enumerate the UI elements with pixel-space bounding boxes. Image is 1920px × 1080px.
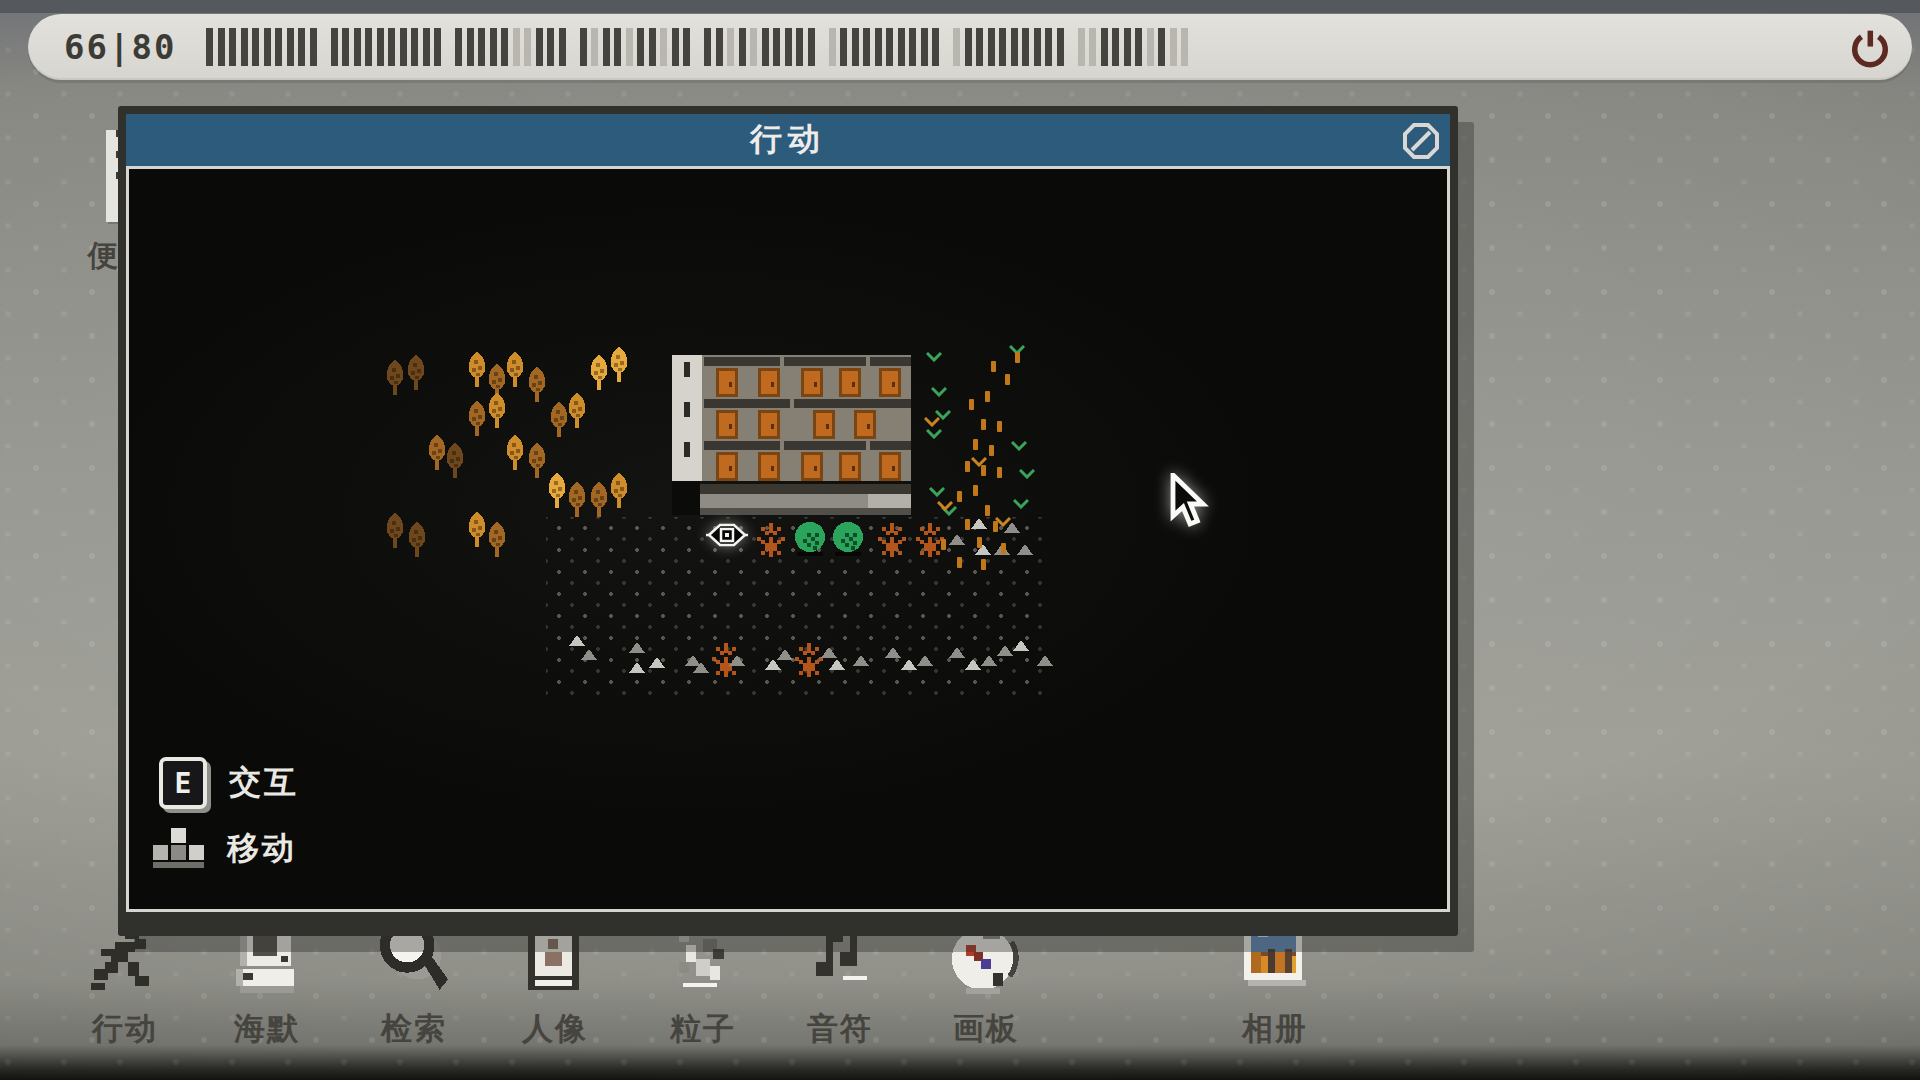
barcode-tick bbox=[536, 28, 543, 66]
barcode-tick bbox=[241, 28, 248, 66]
barcode-tick bbox=[808, 28, 815, 66]
tree-sprite bbox=[526, 367, 548, 405]
barcode-tick bbox=[275, 28, 282, 66]
barcode-tick bbox=[467, 28, 474, 66]
tree-sprite bbox=[466, 512, 488, 550]
barcode-tick bbox=[455, 28, 462, 66]
tree-sprite bbox=[546, 473, 568, 511]
tree-sprite bbox=[588, 355, 610, 393]
crop-dash-sprite bbox=[991, 361, 996, 372]
barcode-tick bbox=[580, 28, 587, 66]
desktop-icon-label: 检索 bbox=[354, 1008, 474, 1050]
rock-sprite bbox=[917, 655, 933, 666]
crop-dash-sprite bbox=[957, 491, 962, 502]
crop-chevron-sprite bbox=[929, 487, 945, 497]
desktop-icon-label: 粒子 bbox=[643, 1008, 763, 1050]
barcode-tick bbox=[988, 28, 995, 66]
barcode-tick bbox=[603, 28, 610, 66]
crop-dash-sprite bbox=[965, 461, 970, 472]
barcode-tick bbox=[218, 28, 225, 66]
bare-tree-sprite bbox=[874, 519, 910, 559]
barcode-tick bbox=[331, 28, 338, 66]
barcode-tick bbox=[626, 28, 633, 66]
barcode-tick bbox=[1181, 28, 1188, 66]
barcode-tick bbox=[423, 28, 430, 66]
rock-sprite bbox=[997, 645, 1013, 656]
barcode-tick bbox=[591, 28, 598, 66]
barcode-tick bbox=[411, 28, 418, 66]
desktop-icon-label: 画板 bbox=[926, 1008, 1046, 1050]
rock-sprite bbox=[581, 649, 597, 660]
tree-sprite bbox=[566, 482, 588, 520]
barcode-tick bbox=[377, 28, 384, 66]
desktop-icon-label: 行动 bbox=[65, 1008, 185, 1050]
rock-sprite bbox=[949, 534, 965, 545]
barcode-tick bbox=[342, 28, 349, 66]
tree-sprite bbox=[486, 393, 508, 431]
bush-sprite bbox=[791, 521, 829, 557]
crop-dash-sprite bbox=[985, 391, 990, 402]
tree-sprite bbox=[406, 522, 428, 560]
barcode-tick bbox=[829, 28, 836, 66]
tree-sprite bbox=[504, 435, 526, 473]
rock-sprite bbox=[649, 657, 665, 668]
barcode-tick bbox=[1057, 28, 1064, 66]
crop-chevron-sprite bbox=[931, 387, 947, 397]
status-bar: 66|80 bbox=[28, 14, 1912, 80]
progress-counter: 66|80 bbox=[64, 27, 176, 67]
tree-sprite bbox=[566, 393, 588, 431]
tree-sprite bbox=[588, 482, 610, 520]
barcode-tick bbox=[1034, 28, 1041, 66]
barcode-tick bbox=[1170, 28, 1177, 66]
legend-interact-label: 交互 bbox=[229, 761, 299, 805]
screen-top-strip bbox=[0, 0, 1920, 13]
barcode-tick bbox=[1022, 28, 1029, 66]
barcode-tick bbox=[1112, 28, 1119, 66]
power-button[interactable] bbox=[1848, 27, 1892, 71]
barcode-tick bbox=[750, 28, 757, 66]
barcode-tick bbox=[1147, 28, 1154, 66]
rock-sprite bbox=[965, 659, 981, 670]
rock-sprite bbox=[777, 649, 793, 660]
barcode-tick bbox=[354, 28, 361, 66]
desktop-icon-label: 海默 bbox=[207, 1008, 327, 1050]
tree-sprite bbox=[486, 522, 508, 560]
barcode-tick bbox=[298, 28, 305, 66]
barcode-tick bbox=[863, 28, 870, 66]
barcode-tick bbox=[287, 28, 294, 66]
building-sprite bbox=[672, 355, 911, 515]
rock-sprite bbox=[569, 635, 585, 646]
barcode-tick bbox=[547, 28, 554, 66]
barcode-tick bbox=[909, 28, 916, 66]
barcode-tick bbox=[614, 28, 621, 66]
eye-icon bbox=[706, 520, 748, 550]
barcode-tick bbox=[683, 28, 690, 66]
tree-sprite bbox=[384, 360, 406, 398]
crop-dash-sprite bbox=[997, 467, 1002, 478]
barcode-tick bbox=[637, 28, 644, 66]
legend-move: 移动 bbox=[153, 827, 297, 871]
barcode-tick bbox=[1124, 28, 1131, 66]
barcode-tick bbox=[660, 28, 667, 66]
tree-sprite bbox=[384, 513, 406, 551]
crop-dash-sprite bbox=[981, 559, 986, 570]
crop-chevron-sprite bbox=[924, 417, 940, 427]
barcode-tick bbox=[1045, 28, 1052, 66]
close-window-button[interactable] bbox=[1402, 122, 1440, 160]
desktop-icon-label: 相册 bbox=[1215, 1008, 1335, 1050]
crop-dash-sprite bbox=[997, 421, 1002, 432]
barcode-tick bbox=[1135, 28, 1142, 66]
rock-sprite bbox=[821, 647, 837, 658]
barcode-tick bbox=[672, 28, 679, 66]
crop-chevron-sprite bbox=[1013, 499, 1029, 509]
tree-sprite bbox=[466, 352, 488, 390]
crop-chevron-sprite bbox=[926, 352, 942, 362]
crop-chevron-sprite bbox=[926, 429, 942, 439]
legend-move-label: 移动 bbox=[227, 827, 297, 871]
crop-dash-sprite bbox=[981, 419, 986, 430]
crop-dash-sprite bbox=[1005, 374, 1010, 385]
crop-chevron-sprite bbox=[1011, 441, 1027, 451]
barcode-tick bbox=[388, 28, 395, 66]
rock-sprite bbox=[765, 659, 781, 670]
crop-dash-sprite bbox=[1001, 543, 1006, 554]
bare-tree-sprite bbox=[791, 639, 827, 679]
barcode-tick bbox=[252, 28, 259, 66]
rock-sprite bbox=[629, 662, 645, 673]
rock-sprite bbox=[971, 518, 987, 529]
barcode-tick bbox=[762, 28, 769, 66]
barcode-tick bbox=[727, 28, 734, 66]
crop-dash-sprite bbox=[977, 537, 982, 548]
barcode-tick bbox=[310, 28, 317, 66]
rock-sprite bbox=[981, 655, 997, 666]
crop-dash-sprite bbox=[989, 445, 994, 456]
crop-dash-sprite bbox=[1015, 352, 1020, 363]
barcode-tick bbox=[921, 28, 928, 66]
barcode-tick bbox=[1011, 28, 1018, 66]
tree-sprite bbox=[608, 473, 630, 511]
barcode-tick bbox=[1089, 28, 1096, 66]
action-window[interactable]: 行动 bbox=[118, 106, 1458, 936]
rock-sprite bbox=[885, 647, 901, 658]
barcode-tick bbox=[953, 28, 960, 66]
tree-sprite bbox=[466, 401, 488, 439]
barcode-tick bbox=[932, 28, 939, 66]
rock-sprite bbox=[949, 647, 965, 658]
barcode-tick bbox=[965, 28, 972, 66]
mouse-cursor-icon bbox=[1167, 473, 1211, 531]
move-keys-icon bbox=[153, 828, 205, 870]
key-e-icon: E bbox=[159, 757, 207, 809]
crop-chevron-sprite bbox=[1019, 469, 1035, 479]
rock-sprite bbox=[1017, 544, 1033, 555]
crop-dash-sprite bbox=[981, 465, 986, 476]
window-title: 行动 bbox=[750, 118, 826, 162]
tree-sprite bbox=[405, 355, 427, 393]
rock-sprite bbox=[729, 655, 745, 666]
rock-sprite bbox=[853, 655, 869, 666]
crop-dash-sprite bbox=[993, 521, 998, 532]
barcode-tick bbox=[264, 28, 271, 66]
barcode-tick bbox=[852, 28, 859, 66]
barcode-tick bbox=[1101, 28, 1108, 66]
barcode bbox=[206, 28, 1202, 66]
barcode-tick bbox=[434, 28, 441, 66]
crop-dash-sprite bbox=[973, 439, 978, 450]
rock-sprite bbox=[1037, 655, 1053, 666]
rock-sprite bbox=[1013, 640, 1029, 651]
barcode-tick bbox=[400, 28, 407, 66]
tree-sprite bbox=[444, 443, 466, 481]
barcode-tick bbox=[1158, 28, 1165, 66]
crop-dash-sprite bbox=[957, 557, 962, 568]
barcode-tick bbox=[976, 28, 983, 66]
barcode-tick bbox=[490, 28, 497, 66]
barcode-tick bbox=[365, 28, 372, 66]
rock-sprite bbox=[693, 662, 709, 673]
map-layer bbox=[129, 169, 1447, 909]
barcode-tick bbox=[875, 28, 882, 66]
crop-dash-sprite bbox=[965, 519, 970, 530]
barcode-tick bbox=[840, 28, 847, 66]
bare-tree-sprite bbox=[753, 519, 789, 559]
barcode-tick bbox=[716, 28, 723, 66]
barcode-tick bbox=[229, 28, 236, 66]
crop-dash-sprite bbox=[985, 505, 990, 516]
barcode-tick bbox=[773, 28, 780, 66]
crop-chevron-sprite bbox=[937, 501, 953, 511]
desktop-icon-label: 人像 bbox=[495, 1008, 615, 1050]
barcode-tick bbox=[559, 28, 566, 66]
rock-sprite bbox=[829, 659, 845, 670]
barcode-tick bbox=[501, 28, 508, 66]
barcode-tick bbox=[649, 28, 656, 66]
tree-sprite bbox=[526, 443, 548, 481]
legend-interact: E 交互 bbox=[159, 757, 299, 809]
barcode-tick bbox=[1078, 28, 1085, 66]
barcode-tick bbox=[478, 28, 485, 66]
tree-sprite bbox=[504, 352, 526, 390]
crop-dash-sprite bbox=[973, 485, 978, 496]
crop-dash-sprite bbox=[969, 399, 974, 410]
tree-sprite bbox=[608, 347, 630, 385]
rock-sprite bbox=[629, 642, 645, 653]
desktop-icon-label: 音符 bbox=[780, 1008, 900, 1050]
barcode-tick bbox=[898, 28, 905, 66]
bush-sprite bbox=[829, 521, 867, 557]
crop-dash-sprite bbox=[941, 539, 946, 550]
barcode-tick bbox=[796, 28, 803, 66]
window-titlebar[interactable]: 行动 bbox=[126, 114, 1450, 166]
power-icon bbox=[1848, 27, 1892, 71]
barcode-tick bbox=[886, 28, 893, 66]
barcode-tick bbox=[739, 28, 746, 66]
block-icon bbox=[1402, 122, 1440, 160]
barcode-tick bbox=[704, 28, 711, 66]
barcode-tick bbox=[513, 28, 520, 66]
barcode-tick bbox=[999, 28, 1006, 66]
barcode-tick bbox=[524, 28, 531, 66]
barcode-tick bbox=[206, 28, 213, 66]
window-content: E 交互 移动 bbox=[126, 166, 1450, 912]
barcode-tick bbox=[785, 28, 792, 66]
rock-sprite bbox=[901, 659, 917, 670]
